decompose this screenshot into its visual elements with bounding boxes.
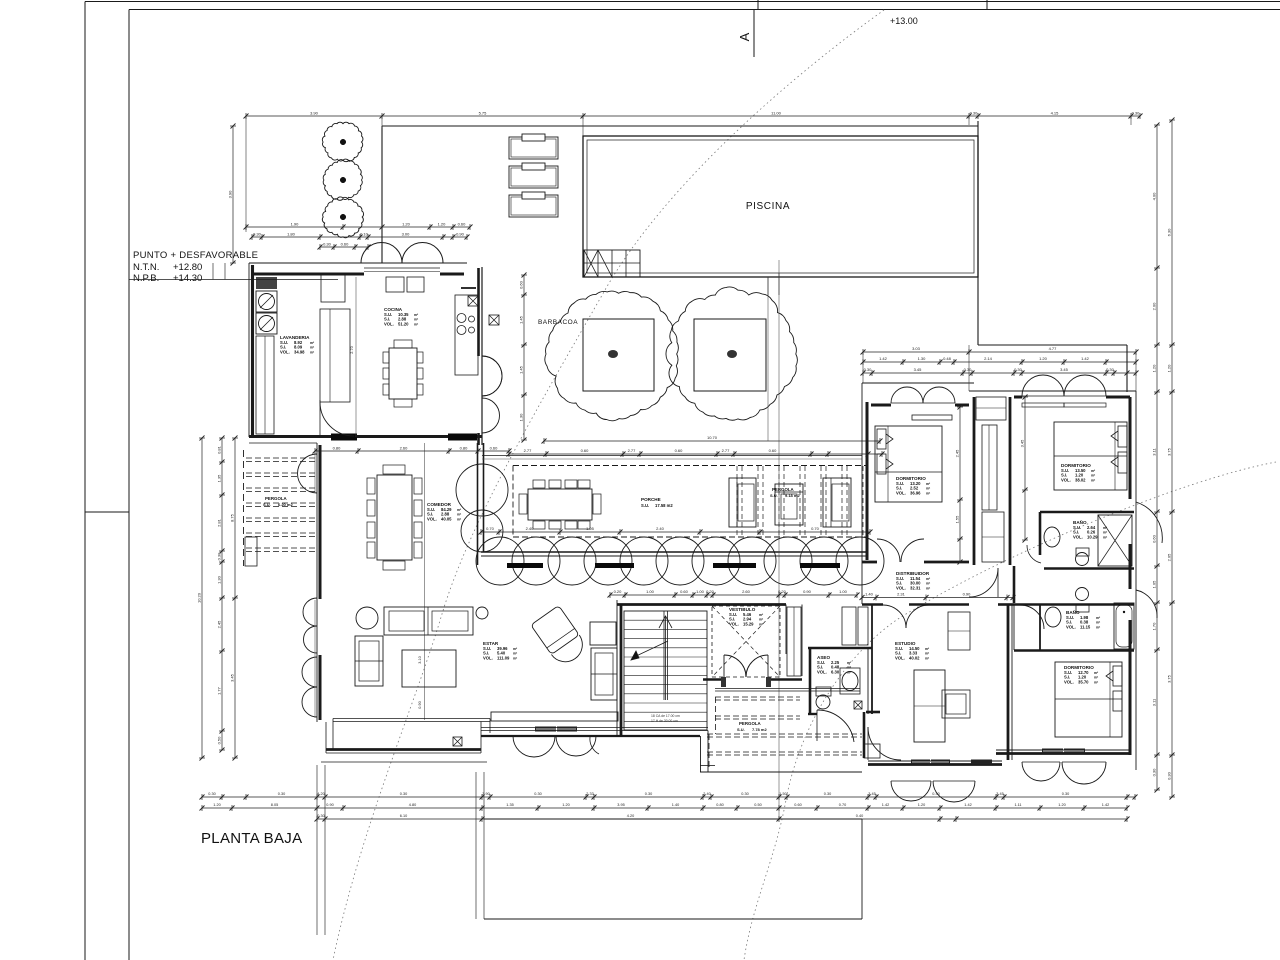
svg-text:3.45: 3.45 — [996, 792, 1003, 796]
svg-text:9.18 m2: 9.18 m2 — [785, 493, 800, 498]
svg-text:PERGOLA: PERGOLA — [265, 496, 288, 501]
svg-text:3.45: 3.45 — [868, 792, 875, 796]
svg-text:PISCINA: PISCINA — [746, 201, 790, 212]
svg-text:0.90: 0.90 — [803, 589, 812, 594]
svg-text:1.20: 1.20 — [562, 803, 569, 807]
svg-text:6.30: 6.30 — [1167, 228, 1172, 237]
svg-text:6.20 m2: 6.20 m2 — [278, 502, 293, 507]
svg-text:2.60: 2.60 — [742, 589, 751, 594]
svg-text:0.30: 0.30 — [534, 792, 541, 796]
svg-text:8.75: 8.75 — [230, 513, 235, 522]
svg-text:BARBACOA: BARBACOA — [538, 319, 578, 326]
svg-text:N.P.B.: N.P.B. — [133, 273, 159, 284]
svg-text:0.60: 0.60 — [458, 222, 467, 227]
svg-text:S.U.: S.U. — [641, 503, 649, 508]
svg-text:1.35: 1.35 — [506, 803, 513, 807]
svg-text:1.20: 1.20 — [402, 222, 411, 227]
svg-text:0.90: 0.90 — [418, 701, 422, 708]
svg-text:1.05: 1.05 — [1152, 580, 1157, 589]
svg-text:18 CA de 17.00 cm: 18 CA de 17.00 cm — [651, 714, 680, 718]
svg-text:1.30: 1.30 — [217, 575, 222, 584]
svg-text:2.40: 2.40 — [526, 526, 535, 531]
svg-text:17 H de 30.00 cm: 17 H de 30.00 cm — [651, 719, 678, 723]
svg-text:0.90: 0.90 — [456, 232, 465, 237]
svg-text:VOL.: VOL. — [729, 621, 739, 626]
svg-text:0.60: 0.60 — [680, 589, 689, 594]
svg-text:1.77: 1.77 — [217, 686, 222, 695]
svg-text:3.11: 3.11 — [1152, 698, 1157, 706]
svg-text:0.30: 0.30 — [1167, 771, 1172, 780]
svg-text:0.60: 0.60 — [490, 446, 499, 451]
svg-text:VOL.: VOL. — [427, 516, 437, 521]
svg-text:3.03: 3.03 — [912, 346, 921, 351]
svg-text:VOL.: VOL. — [896, 490, 906, 495]
svg-text:8.05: 8.05 — [271, 803, 278, 807]
svg-text:3.75: 3.75 — [1167, 674, 1172, 683]
svg-text:0.60: 0.60 — [519, 280, 524, 289]
svg-text:2.81: 2.81 — [217, 518, 222, 527]
svg-text:+13.00: +13.00 — [890, 16, 918, 26]
svg-text:1.00: 1.00 — [646, 589, 655, 594]
svg-text:2.45: 2.45 — [955, 449, 960, 458]
svg-text:1.45: 1.45 — [519, 365, 524, 374]
svg-text:11.15: 11.15 — [1080, 624, 1091, 629]
svg-text:1.90: 1.90 — [291, 222, 300, 227]
svg-text:+12.80: +12.80 — [173, 262, 202, 273]
svg-text:0.30: 0.30 — [970, 111, 979, 116]
svg-text:3.10: 3.10 — [418, 656, 422, 663]
svg-text:35.70: 35.70 — [1078, 679, 1089, 684]
svg-text:3.45: 3.45 — [1060, 367, 1069, 372]
svg-text:4.20: 4.20 — [627, 814, 634, 818]
svg-text:0.30: 0.30 — [645, 792, 652, 796]
svg-text:+14.30: +14.30 — [173, 273, 202, 284]
svg-text:1.00: 1.00 — [696, 589, 705, 594]
svg-text:0.60: 0.60 — [341, 242, 350, 247]
svg-text:2.70: 2.70 — [350, 346, 354, 353]
svg-text:0.60: 0.60 — [769, 448, 778, 453]
svg-text:3.90: 3.90 — [482, 792, 489, 796]
svg-text:1.20: 1.20 — [213, 803, 220, 807]
svg-text:0.30: 0.30 — [278, 792, 285, 796]
svg-text:1.20: 1.20 — [438, 222, 447, 227]
svg-text:1.45: 1.45 — [519, 315, 524, 324]
svg-text:2.14: 2.14 — [984, 356, 993, 361]
svg-text:2.00: 2.00 — [1152, 302, 1157, 311]
svg-text:2.77: 2.77 — [722, 448, 731, 453]
svg-text:0.30: 0.30 — [824, 792, 831, 796]
svg-text:4.80: 4.80 — [409, 803, 416, 807]
svg-text:0.30: 0.30 — [253, 232, 262, 237]
svg-text:0.60: 0.60 — [794, 803, 801, 807]
svg-text:1.20: 1.20 — [918, 803, 925, 807]
svg-text:3.45: 3.45 — [230, 673, 235, 682]
svg-text:3.00: 3.00 — [402, 232, 411, 237]
svg-text:0.20: 0.20 — [778, 589, 787, 594]
svg-text:1.42: 1.42 — [1102, 803, 1109, 807]
svg-text:15.29: 15.29 — [743, 621, 754, 626]
svg-text:A: A — [737, 32, 752, 41]
svg-text:3.45: 3.45 — [914, 367, 923, 372]
svg-text:2.77: 2.77 — [628, 448, 637, 453]
svg-text:0.50: 0.50 — [217, 736, 222, 745]
svg-text:3.95: 3.95 — [617, 803, 624, 807]
svg-text:PERGOLA: PERGOLA — [772, 487, 795, 492]
svg-text:1.55: 1.55 — [955, 515, 960, 524]
svg-text:S.U.: S.U. — [737, 727, 745, 732]
svg-text:0.30: 0.30 — [964, 367, 973, 372]
svg-text:PUNTO + DESFAVORABLE: PUNTO + DESFAVORABLE — [133, 250, 258, 261]
svg-text:VOL.: VOL. — [1064, 679, 1074, 684]
svg-text:0.50: 0.50 — [754, 803, 761, 807]
svg-text:3.45: 3.45 — [1020, 439, 1025, 448]
svg-text:4.15: 4.15 — [1051, 111, 1060, 116]
svg-text:3.11: 3.11 — [1152, 447, 1157, 455]
svg-text:2.33: 2.33 — [586, 792, 593, 796]
svg-text:2.45: 2.45 — [217, 620, 222, 629]
svg-text:0.60: 0.60 — [675, 448, 684, 453]
svg-text:0.30: 0.30 — [317, 814, 324, 818]
svg-text:40.02: 40.02 — [909, 655, 920, 660]
svg-text:VOL.: VOL. — [483, 655, 493, 660]
svg-text:1.40: 1.40 — [865, 592, 874, 597]
svg-text:0.48: 0.48 — [943, 356, 952, 361]
svg-text:17.58 m2: 17.58 m2 — [655, 503, 673, 508]
svg-text:2.40: 2.40 — [656, 526, 665, 531]
svg-text:VOL.: VOL. — [817, 669, 827, 674]
svg-text:VOL.: VOL. — [1066, 624, 1076, 629]
svg-text:0.20: 0.20 — [706, 589, 715, 594]
svg-text:VOL.: VOL. — [280, 349, 290, 354]
svg-text:2.60: 2.60 — [400, 446, 409, 451]
svg-text:0.80: 0.80 — [333, 446, 342, 451]
svg-text:0.90: 0.90 — [326, 803, 333, 807]
svg-text:1.35: 1.35 — [217, 474, 222, 483]
svg-text:2.05: 2.05 — [1167, 553, 1172, 562]
svg-text:0.80: 0.80 — [460, 446, 469, 451]
svg-text:1.05: 1.05 — [586, 526, 595, 531]
svg-text:0.70: 0.70 — [811, 526, 820, 531]
svg-text:1.80: 1.80 — [287, 232, 296, 237]
svg-text:PERGOLA: PERGOLA — [739, 721, 762, 726]
svg-text:S.U.: S.U. — [770, 493, 778, 498]
svg-text:38.02: 38.02 — [1075, 477, 1086, 482]
svg-text:0.60: 0.60 — [1152, 534, 1157, 543]
svg-text:1.50: 1.50 — [779, 792, 786, 796]
svg-text:3.75: 3.75 — [1167, 447, 1172, 456]
svg-text:1.20: 1.20 — [1152, 364, 1157, 373]
svg-text:0.30: 0.30 — [741, 792, 748, 796]
svg-text:0.81: 0.81 — [217, 445, 222, 454]
svg-text:0.30: 0.30 — [323, 242, 332, 247]
svg-text:PLANTA BAJA: PLANTA BAJA — [201, 830, 302, 847]
svg-text:10.29: 10.29 — [1087, 534, 1098, 539]
svg-text:1.42: 1.42 — [882, 803, 889, 807]
svg-text:0.30: 0.30 — [1106, 367, 1115, 372]
svg-text:0.60: 0.60 — [581, 448, 590, 453]
svg-text:0.30: 0.30 — [1014, 367, 1023, 372]
svg-text:VOL.: VOL. — [384, 321, 394, 326]
svg-text:PORCHE: PORCHE — [641, 497, 661, 502]
svg-text:0.20: 0.20 — [614, 589, 623, 594]
svg-text:1.42: 1.42 — [879, 356, 888, 361]
svg-text:0.40: 0.40 — [856, 814, 863, 818]
svg-text:0.30: 0.30 — [1062, 792, 1069, 796]
svg-text:36.96: 36.96 — [910, 490, 921, 495]
svg-text:1.20: 1.20 — [1039, 356, 1048, 361]
svg-text:N.T.N.: N.T.N. — [133, 262, 159, 273]
svg-text:2.40: 2.40 — [703, 792, 710, 796]
svg-text:1.30: 1.30 — [519, 413, 524, 422]
svg-text:5.75: 5.75 — [479, 111, 488, 116]
svg-text:0.30: 0.30 — [1152, 768, 1157, 777]
svg-text:3.90: 3.90 — [228, 190, 233, 199]
svg-text:0.30: 0.30 — [1132, 111, 1141, 116]
svg-text:VOL.: VOL. — [896, 585, 906, 590]
svg-text:4.00: 4.00 — [1152, 192, 1157, 201]
svg-text:4.77: 4.77 — [1049, 346, 1058, 351]
svg-text:11.00: 11.00 — [771, 111, 781, 116]
svg-text:S.U.: S.U. — [263, 502, 271, 507]
svg-text:51.20: 51.20 — [398, 321, 409, 326]
svg-text:1.70: 1.70 — [1152, 622, 1157, 631]
svg-text:VOL.: VOL. — [1061, 477, 1071, 482]
svg-text:4.20: 4.20 — [317, 792, 324, 796]
svg-text:3.90: 3.90 — [310, 111, 319, 116]
svg-text:VOL.: VOL. — [895, 655, 905, 660]
svg-text:6.30: 6.30 — [831, 669, 840, 674]
svg-text:0.90: 0.90 — [963, 592, 972, 597]
svg-text:0.10: 0.10 — [360, 232, 369, 237]
svg-text:1.40: 1.40 — [672, 803, 679, 807]
svg-text:VOL.: VOL. — [1073, 534, 1083, 539]
svg-text:1.42: 1.42 — [1081, 356, 1090, 361]
svg-text:10.70: 10.70 — [707, 435, 718, 440]
svg-text:0.30: 0.30 — [217, 552, 222, 561]
svg-text:2.31: 2.31 — [897, 592, 906, 597]
svg-text:40.05: 40.05 — [441, 516, 452, 521]
svg-text:0.80: 0.80 — [716, 803, 723, 807]
svg-text:1.20: 1.20 — [1167, 364, 1172, 373]
svg-text:0.30: 0.30 — [400, 792, 407, 796]
svg-text:0.30: 0.30 — [208, 792, 215, 796]
svg-text:1.30: 1.30 — [918, 356, 927, 361]
svg-text:0.70: 0.70 — [839, 803, 846, 807]
svg-text:32.31: 32.31 — [910, 585, 921, 590]
svg-text:0.30: 0.30 — [932, 792, 939, 796]
svg-text:1.42: 1.42 — [964, 803, 971, 807]
svg-text:10.20: 10.20 — [197, 592, 202, 603]
svg-text:0.30: 0.30 — [864, 367, 873, 372]
svg-text:7.78 m2: 7.78 m2 — [752, 727, 767, 732]
svg-text:6.10: 6.10 — [400, 814, 407, 818]
svg-text:111.09: 111.09 — [497, 655, 510, 660]
svg-text:0.70: 0.70 — [486, 526, 495, 531]
svg-text:1.00: 1.00 — [839, 589, 848, 594]
svg-text:1.11: 1.11 — [1014, 803, 1021, 807]
svg-text:1.20: 1.20 — [1058, 803, 1065, 807]
svg-text:2.77: 2.77 — [524, 448, 533, 453]
svg-text:34.98: 34.98 — [294, 349, 305, 354]
